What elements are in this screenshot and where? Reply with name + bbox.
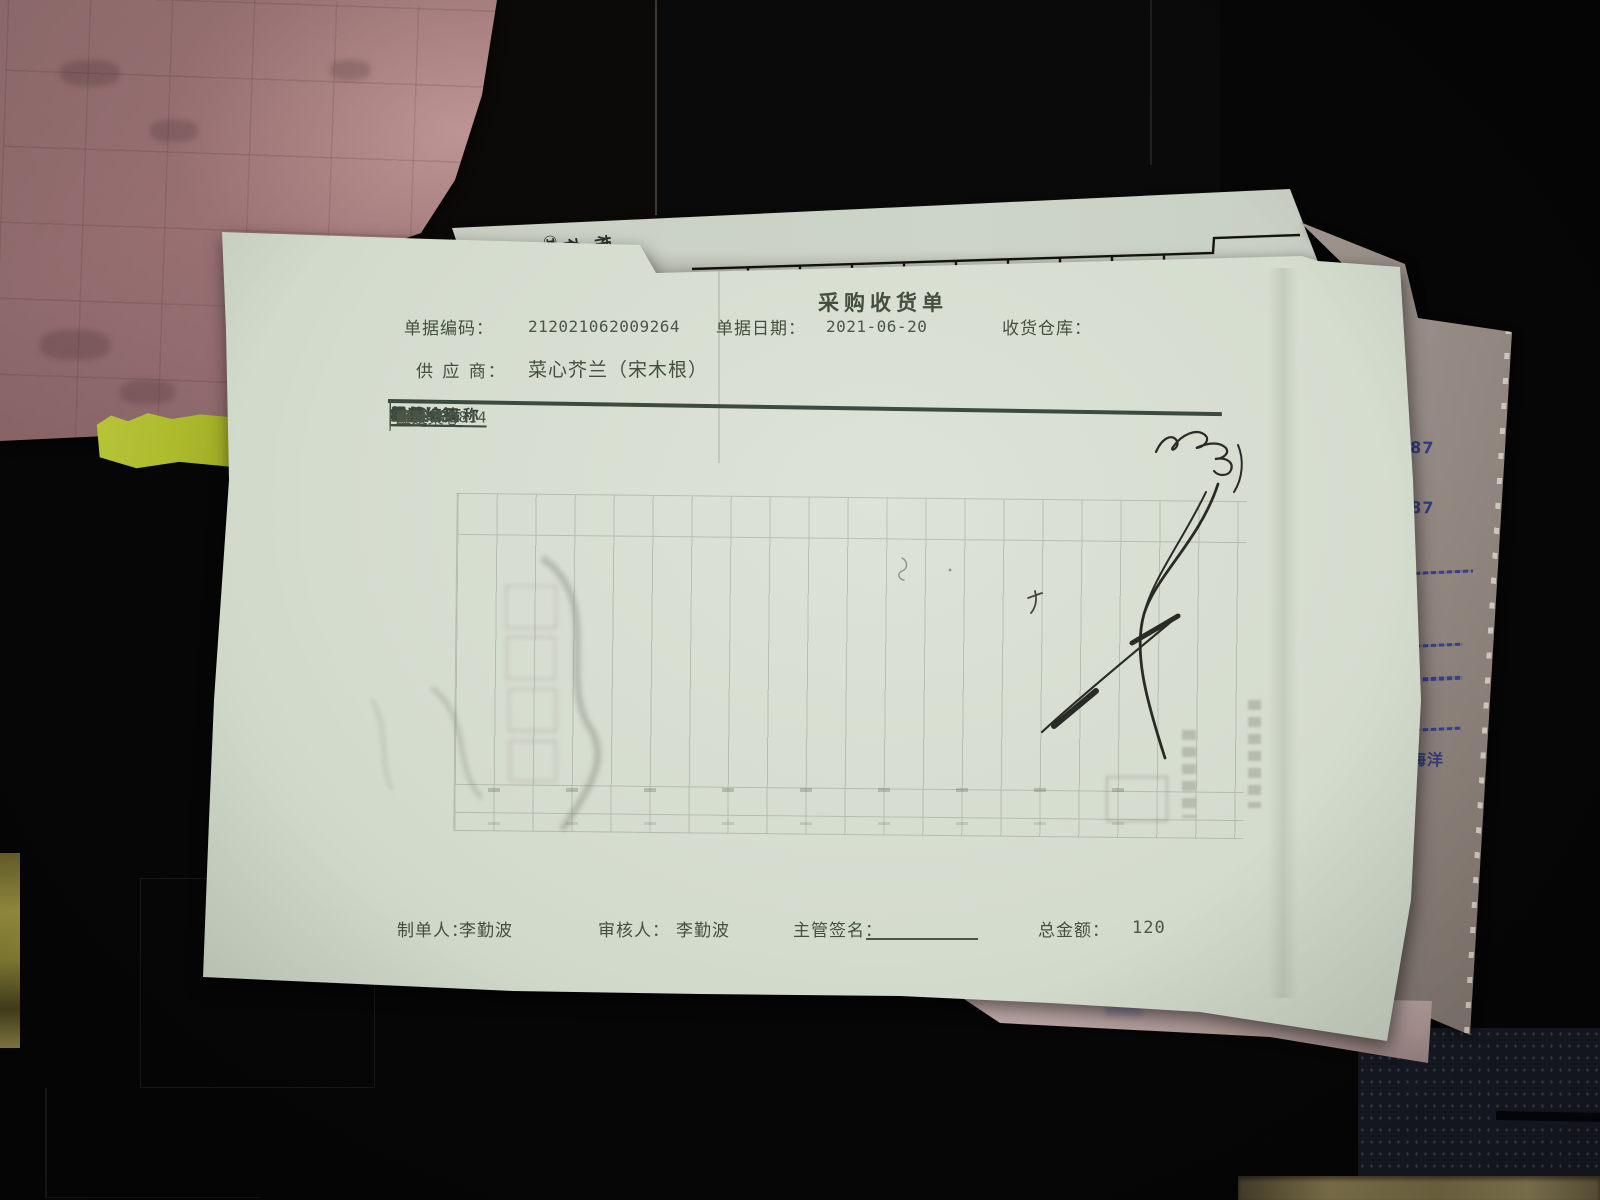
pen-mark (1028, 591, 1042, 613)
photo-of-receipt: ① 存 根 187 287 注 王海洋 (0, 0, 1600, 1200)
signature-long-arc (1140, 484, 1218, 758)
signature-diagonal (1042, 615, 1179, 732)
faint-ink-mark (899, 558, 907, 580)
handwritten-signature (0, 0, 1600, 1200)
signature-scribble (1156, 432, 1232, 475)
